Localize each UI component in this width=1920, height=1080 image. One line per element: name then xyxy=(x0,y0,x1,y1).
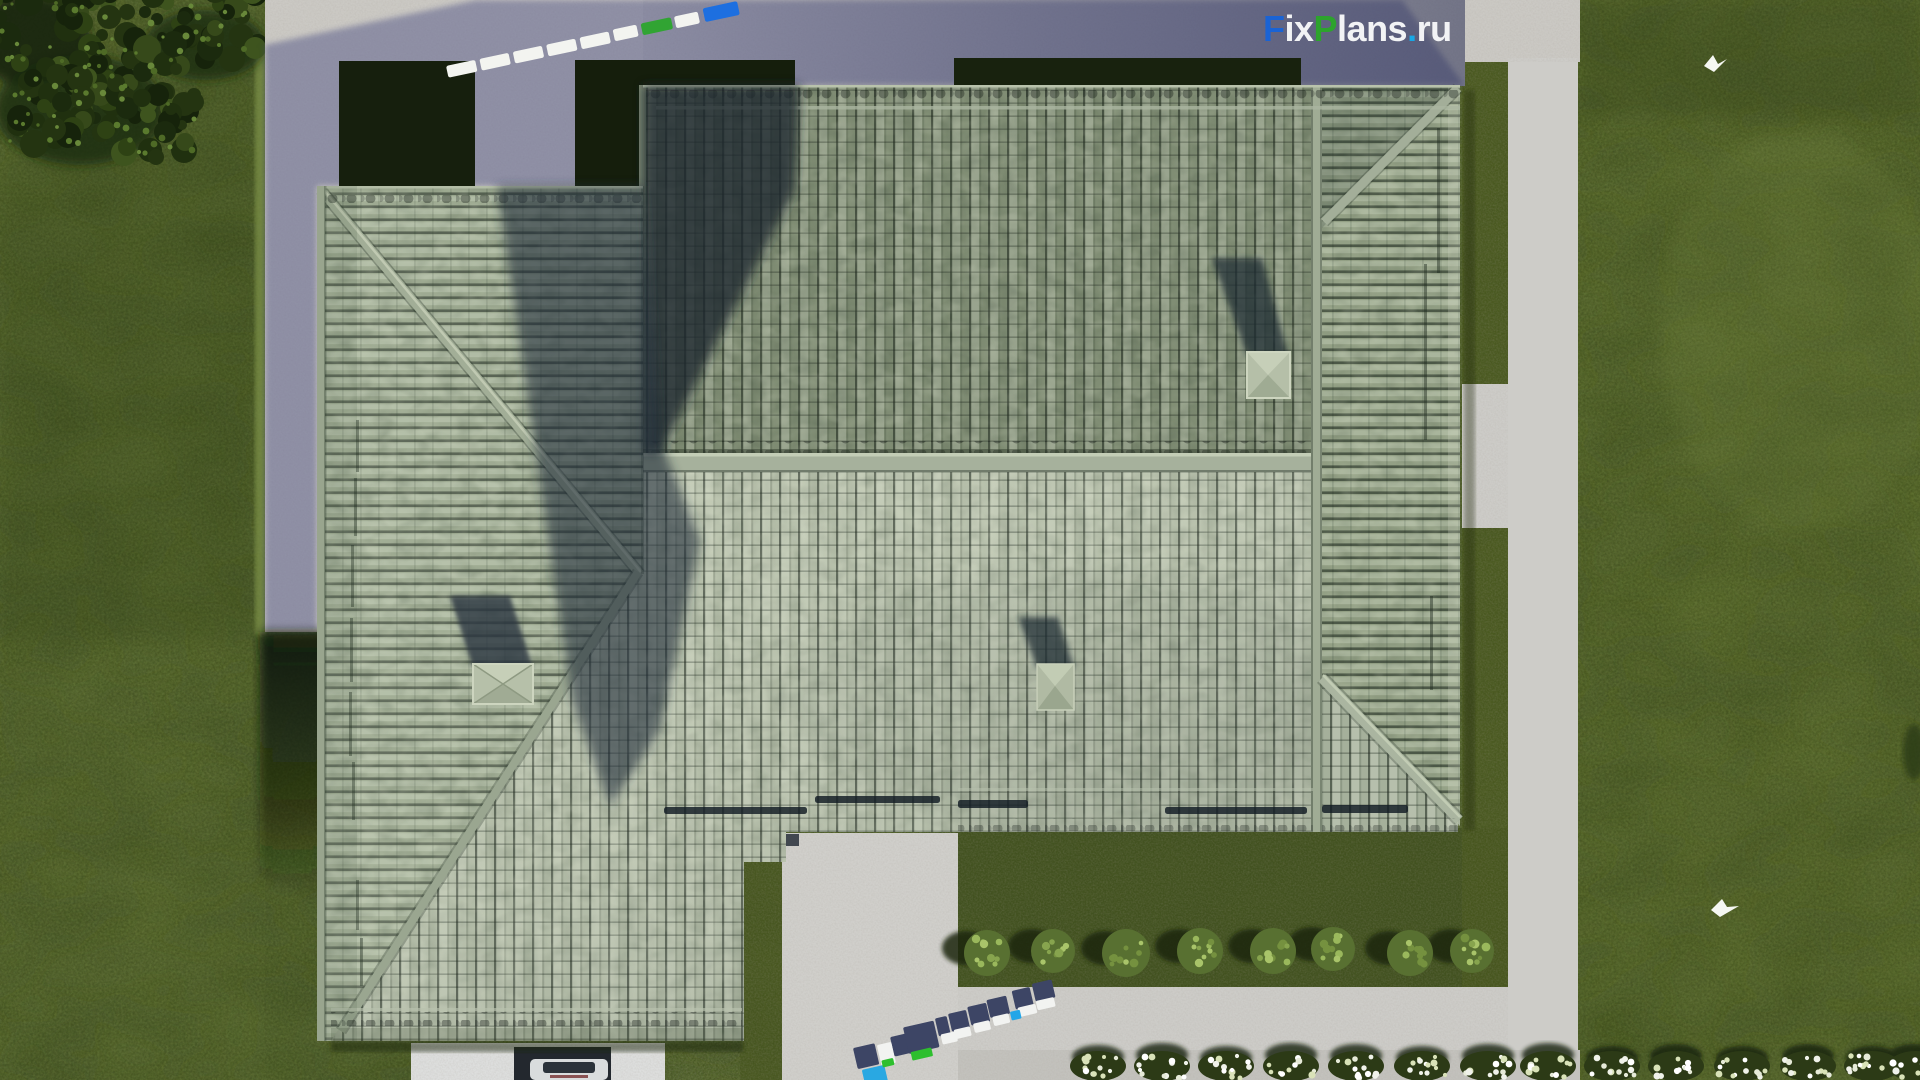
svg-text:FixPlans.ru: FixPlans.ru xyxy=(1263,8,1452,49)
